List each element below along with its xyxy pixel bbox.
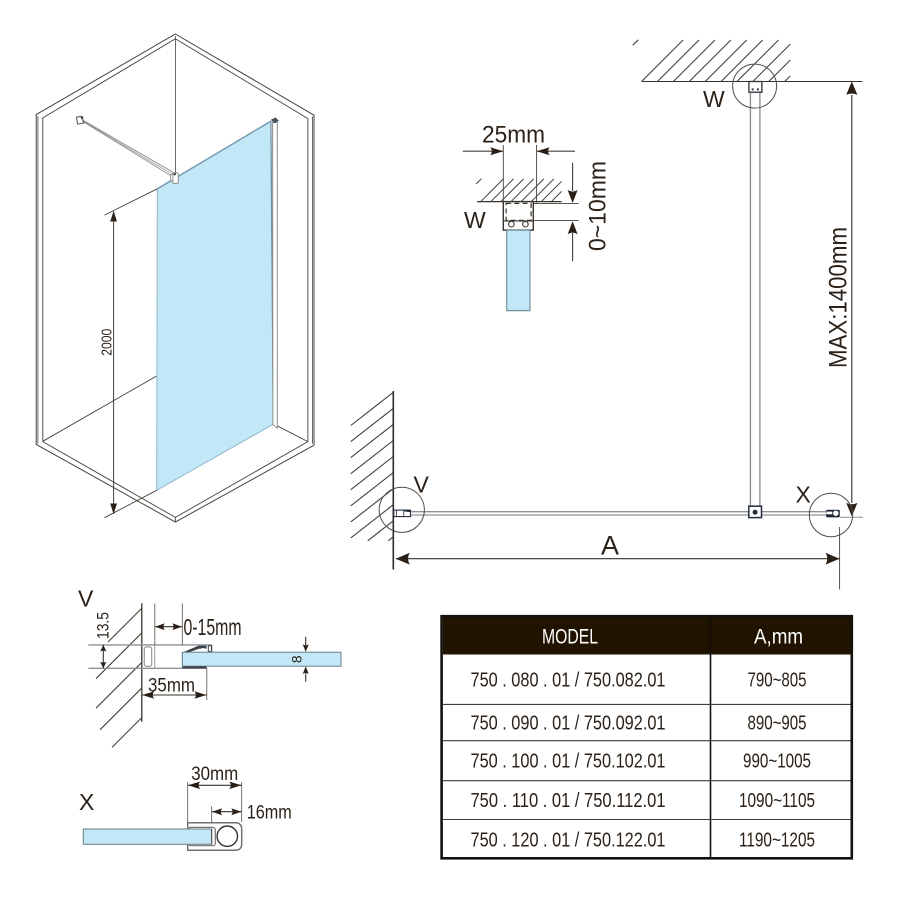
svg-text:8: 8 — [289, 655, 305, 663]
svg-text:750 . 120 . 01 / 750.122.01: 750 . 120 . 01 / 750.122.01 — [471, 830, 666, 852]
svg-text:35mm: 35mm — [148, 676, 195, 697]
svg-text:1190~1205: 1190~1205 — [739, 830, 815, 852]
svg-text:A: A — [601, 531, 619, 561]
svg-text:V: V — [78, 586, 94, 612]
svg-text:890~905: 890~905 — [748, 713, 807, 735]
svg-text:W: W — [464, 207, 486, 233]
svg-text:2000: 2000 — [98, 329, 115, 356]
svg-text:W: W — [703, 86, 725, 112]
svg-text:MAX:1400mm: MAX:1400mm — [825, 227, 853, 368]
svg-text:790~805: 790~805 — [748, 670, 807, 692]
svg-text:30mm: 30mm — [191, 764, 238, 785]
svg-text:990~1005: 990~1005 — [743, 751, 811, 773]
svg-text:A,mm: A,mm — [754, 626, 803, 649]
svg-text:750 . 110 . 01 / 750.112.01: 750 . 110 . 01 / 750.112.01 — [471, 790, 666, 812]
svg-text:0-15mm: 0-15mm — [184, 614, 242, 640]
svg-text:X: X — [79, 789, 94, 815]
svg-text:13.5: 13.5 — [93, 612, 112, 639]
svg-text:V: V — [414, 472, 430, 498]
svg-text:MODEL: MODEL — [542, 626, 598, 649]
svg-text:16mm: 16mm — [247, 803, 292, 824]
svg-text:X: X — [796, 481, 811, 507]
svg-text:750 . 090 . 01 / 750.092.01: 750 . 090 . 01 / 750.092.01 — [471, 713, 666, 735]
svg-text:25mm: 25mm — [482, 122, 545, 149]
svg-text:750 . 100 . 01 / 750.102.01: 750 . 100 . 01 / 750.102.01 — [471, 751, 666, 773]
svg-text:750 . 080 . 01 / 750.082.01: 750 . 080 . 01 / 750.082.01 — [471, 670, 666, 692]
svg-text:1090~1105: 1090~1105 — [739, 790, 815, 812]
svg-text:0~10mm: 0~10mm — [585, 161, 612, 251]
